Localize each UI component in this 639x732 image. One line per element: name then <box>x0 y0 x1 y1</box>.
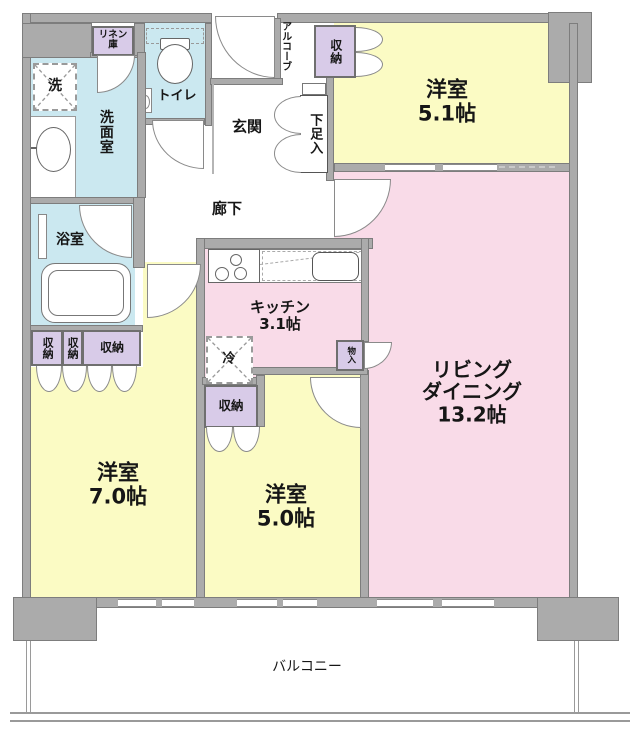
label-washer: 洗 <box>48 79 62 95</box>
label-balcony: バルコニー <box>272 660 342 676</box>
wall-western50-living <box>360 370 369 598</box>
sliding-door-gap-1 <box>385 164 435 171</box>
entrance-small-cabinet <box>302 83 326 95</box>
label-living-dining: リビング ダイニング 13.2帖 <box>422 358 522 425</box>
label-alcove: アルコーブ <box>279 21 290 71</box>
room-western-50-area-left <box>205 427 264 598</box>
washstand-faucet <box>30 147 37 149</box>
label-western-50: 洋室 5.0帖 <box>257 483 315 530</box>
entrance-step-line <box>212 84 214 174</box>
window-western70-1 <box>118 599 156 607</box>
wall-kitchen-living <box>361 238 369 342</box>
balcony-rail-bottom-b <box>10 720 630 722</box>
washstand-sink <box>36 127 71 172</box>
wall-right <box>569 23 578 600</box>
wall-top-left <box>22 13 212 23</box>
wall-bathroom-right <box>133 197 145 268</box>
label-toilet: トイレ <box>157 90 196 105</box>
label-shoe-cabinet: 下足入 <box>307 113 322 155</box>
window-living-1 <box>377 599 433 607</box>
label-closet-row-1: 収納 <box>41 337 53 359</box>
wall-kitchen-top <box>198 238 373 249</box>
sliding-door-dashed <box>499 166 555 168</box>
living-line2: ダイニング <box>422 381 522 403</box>
balcony-rail-right-a <box>574 641 575 714</box>
western-70-name: 洋室 <box>89 461 147 485</box>
balcony-rail-bottom-a <box>10 712 630 714</box>
linen-storage-label: リネン庫 <box>96 31 130 52</box>
pillar-balcony-right <box>537 597 619 641</box>
label-monoire: 物入 <box>345 347 355 364</box>
balcony-rail-left-b <box>30 641 31 714</box>
sliding-door-gap-2 <box>443 164 497 171</box>
wall-top-right <box>277 13 592 23</box>
label-closet-row-3: 収納 <box>100 341 124 354</box>
toilet-bowl <box>157 44 193 84</box>
western-70-size: 7.0帖 <box>89 485 147 509</box>
stove-burner-right <box>234 267 247 280</box>
kitchen-size: 3.1帖 <box>250 316 310 333</box>
label-closet-kitchen: 収納 <box>218 399 243 413</box>
stove-burner-top <box>230 254 242 266</box>
wall-washroom-right <box>137 52 146 198</box>
pillar-balcony-left <box>13 597 97 641</box>
label-washroom: 洗面室 <box>97 110 113 155</box>
wall-washroom-bathroom <box>30 197 137 204</box>
kitchen-sink <box>312 252 359 281</box>
label-kitchen: キッチン 3.1帖 <box>250 299 310 333</box>
stove-burner-left <box>215 267 229 281</box>
label-western-51: 洋室 5.1帖 <box>418 78 476 125</box>
window-western70-2 <box>162 599 194 607</box>
western-50-size: 5.0帖 <box>257 507 315 531</box>
label-bathroom: 浴室 <box>56 233 84 249</box>
balcony-rail-left-a <box>26 641 27 714</box>
wall-toilet-right <box>205 23 212 126</box>
western-51-size: 5.1帖 <box>418 102 476 126</box>
wall-alcove-entrance <box>210 78 283 85</box>
label-entrance: 玄関 <box>232 119 262 136</box>
window-western50-1 <box>237 599 277 607</box>
kitchen-name: キッチン <box>250 299 310 316</box>
balcony-rail-right-b <box>578 641 579 714</box>
label-closet-row-2: 収納 <box>66 337 78 359</box>
label-closet-51: 収納 <box>328 39 341 65</box>
living-size: 13.2帖 <box>422 403 522 425</box>
wall-top-left-block <box>22 23 92 58</box>
label-fridge: 冷 <box>222 353 235 368</box>
bathtub-inner <box>48 270 124 316</box>
floor-plan: リネン庫 <box>0 0 639 732</box>
western-50-name: 洋室 <box>257 483 315 507</box>
wall-left <box>22 13 31 600</box>
window-living-2 <box>442 599 494 607</box>
label-western-70: 洋室 7.0帖 <box>89 461 147 508</box>
western-51-name: 洋室 <box>418 78 476 102</box>
label-hallway: 廊下 <box>212 201 242 218</box>
living-line1: リビング <box>422 358 522 380</box>
bathroom-shelf <box>38 214 47 259</box>
linen-storage-box: リネン庫 <box>92 26 134 56</box>
window-western50-2 <box>283 599 317 607</box>
